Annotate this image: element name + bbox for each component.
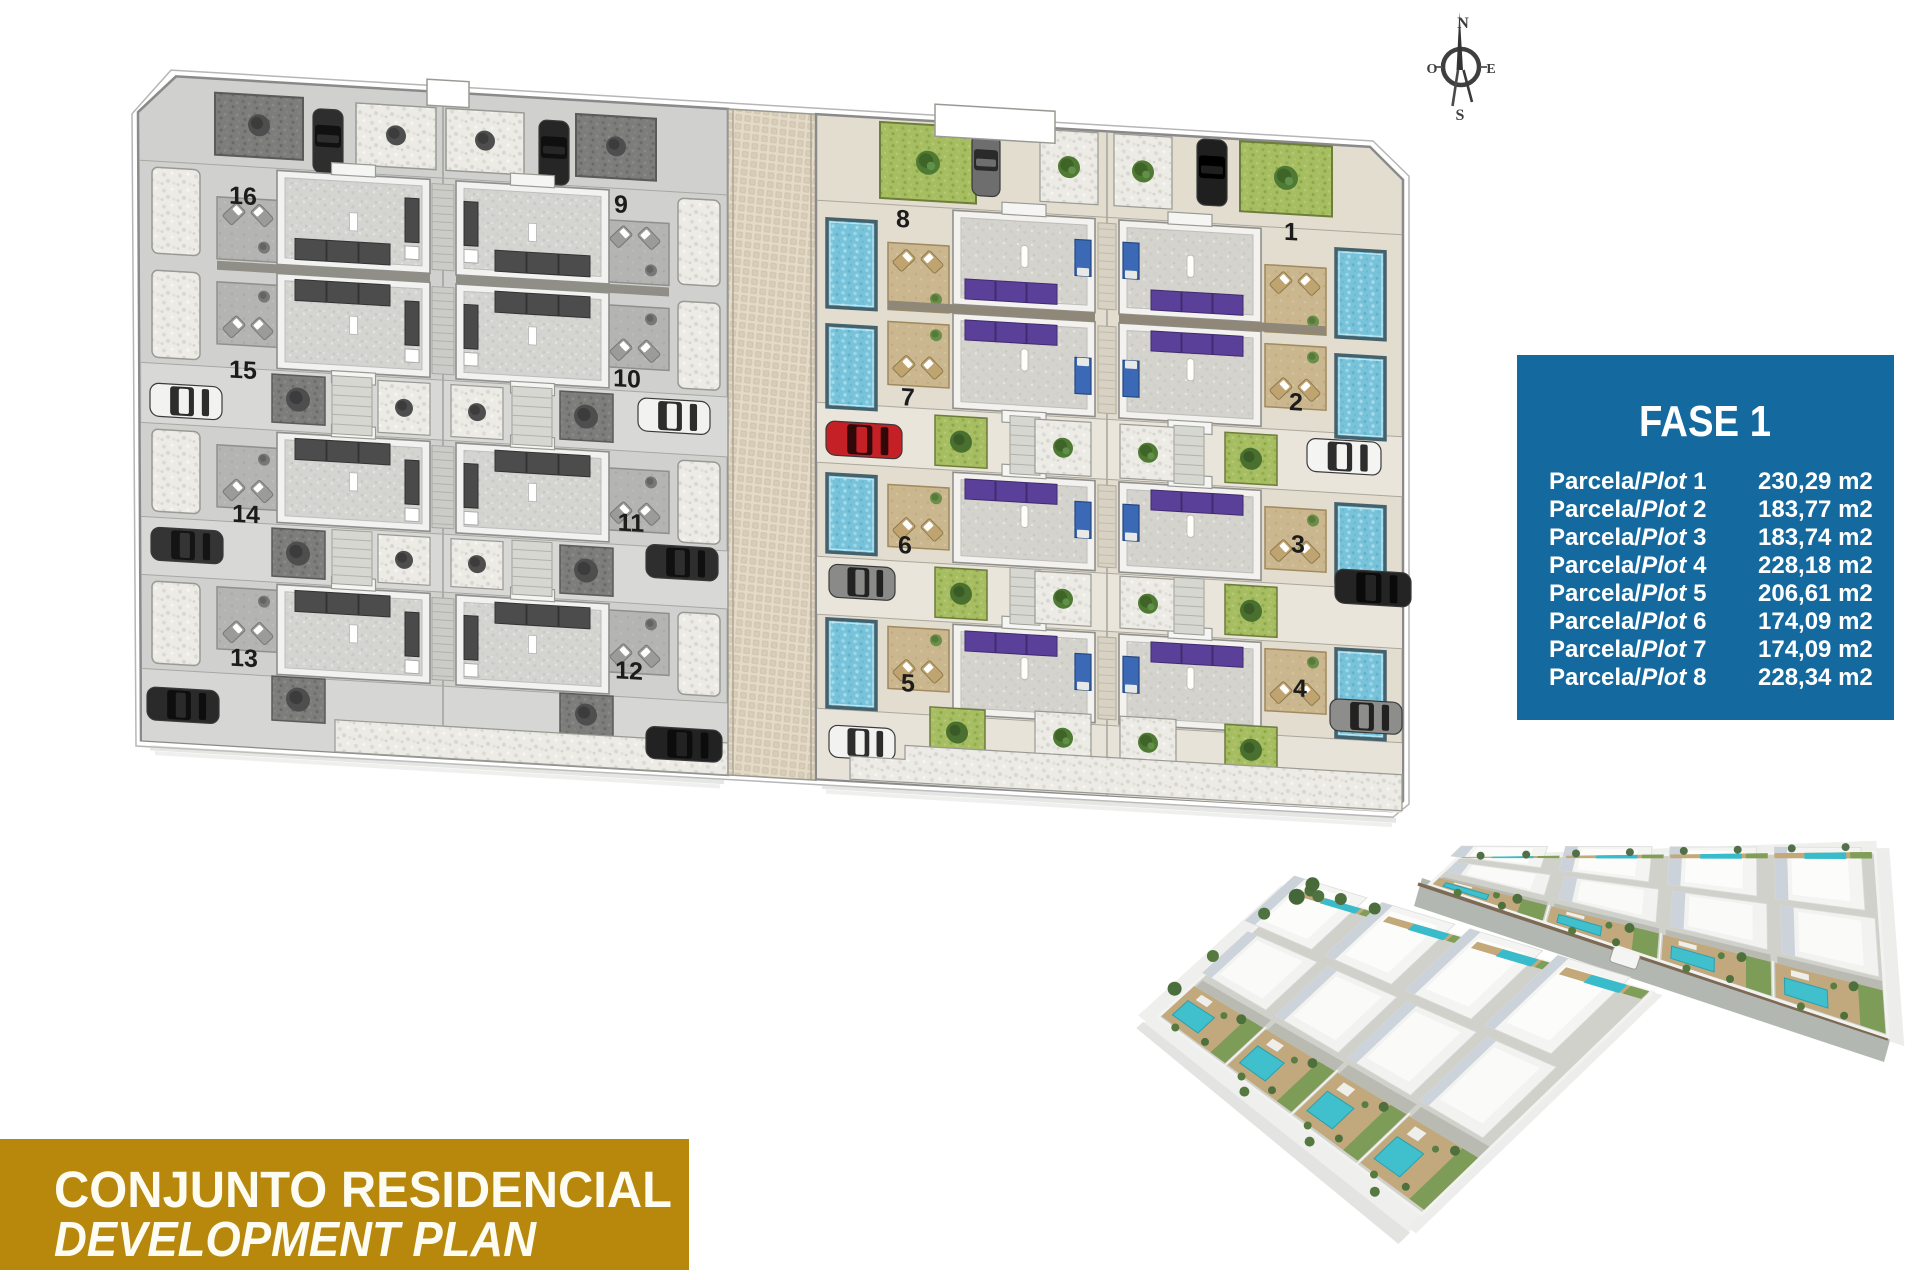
svg-text:FASE 1: FASE 1 xyxy=(1639,397,1771,446)
svg-text:11: 11 xyxy=(618,508,645,538)
svg-text:Parcela/Plot 7: Parcela/Plot 7 xyxy=(1549,636,1706,663)
svg-text:DEVELOPMENT PLAN: DEVELOPMENT PLAN xyxy=(54,1213,537,1267)
svg-text:5: 5 xyxy=(901,669,915,698)
svg-text:Parcela/Plot 2: Parcela/Plot 2 xyxy=(1549,496,1706,523)
svg-text:CONJUNTO RESIDENCIAL: CONJUNTO RESIDENCIAL xyxy=(54,1161,672,1218)
svg-text:174,09 m2: 174,09 m2 xyxy=(1758,608,1873,635)
svg-text:228,34 m2: 228,34 m2 xyxy=(1758,664,1873,691)
svg-text:8: 8 xyxy=(896,205,910,234)
svg-text:S: S xyxy=(1456,107,1465,124)
svg-text:1: 1 xyxy=(1284,218,1298,247)
svg-text:183,74 m2: 183,74 m2 xyxy=(1758,524,1873,551)
svg-text:Parcela/Plot 3: Parcela/Plot 3 xyxy=(1549,524,1706,551)
svg-text:7: 7 xyxy=(901,383,915,412)
svg-text:Parcela/Plot 8: Parcela/Plot 8 xyxy=(1549,664,1706,691)
svg-text:15: 15 xyxy=(229,356,257,386)
svg-text:6: 6 xyxy=(898,531,912,560)
svg-text:13: 13 xyxy=(230,644,258,674)
svg-text:O: O xyxy=(1427,62,1438,77)
svg-text:14: 14 xyxy=(232,500,260,530)
svg-text:228,18 m2: 228,18 m2 xyxy=(1758,552,1873,579)
svg-text:9: 9 xyxy=(614,190,628,219)
svg-text:183,77 m2: 183,77 m2 xyxy=(1758,496,1873,523)
svg-text:Parcela/Plot 6: Parcela/Plot 6 xyxy=(1549,608,1706,635)
svg-text:174,09 m2: 174,09 m2 xyxy=(1758,636,1873,663)
svg-text:206,61 m2: 206,61 m2 xyxy=(1758,580,1873,607)
svg-text:230,29 m2: 230,29 m2 xyxy=(1758,468,1873,495)
svg-text:3: 3 xyxy=(1291,530,1305,559)
svg-text:Parcela/Plot 5: Parcela/Plot 5 xyxy=(1549,580,1706,607)
svg-text:2: 2 xyxy=(1289,388,1303,417)
svg-text:E: E xyxy=(1486,62,1495,77)
svg-text:4: 4 xyxy=(1293,674,1307,703)
svg-text:16: 16 xyxy=(229,182,257,212)
svg-text:Parcela/Plot 4: Parcela/Plot 4 xyxy=(1549,552,1707,579)
svg-text:N: N xyxy=(1457,15,1469,32)
svg-text:12: 12 xyxy=(615,656,643,686)
svg-text:Parcela/Plot 1: Parcela/Plot 1 xyxy=(1549,468,1706,495)
svg-text:10: 10 xyxy=(613,364,641,394)
